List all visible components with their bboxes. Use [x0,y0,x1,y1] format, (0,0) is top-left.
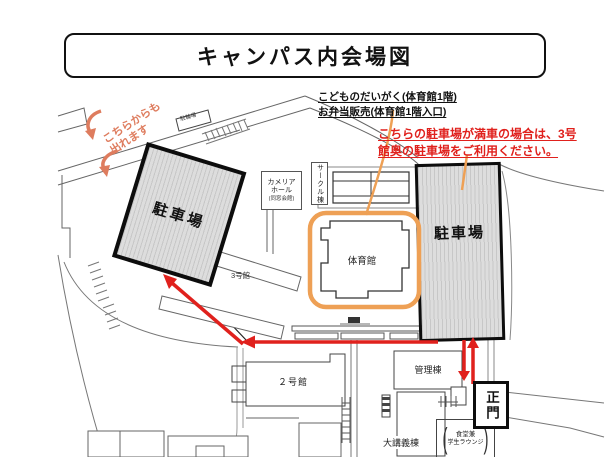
lecture-building-label: 大講義棟 [382,436,420,449]
main-gate-box: 正門 [473,381,509,429]
annotation-full-line1: こちらの駐車場が満車の場合は、3号 [378,126,577,143]
camellia-hall-label-2: ホール [271,187,292,196]
camellia-hall-label-1: カメリア [268,179,296,188]
parking-right-leader-line [462,155,467,190]
camellia-hall-label-3: (同窓会館) [269,196,295,203]
main-gate-label: 正門 [481,390,501,421]
building3-label: 3号館 [231,270,250,281]
map-title-box: キャンパス内会場図 [64,33,546,78]
gym-label: 体育館 [333,253,391,267]
annotation-kids-line2: お弁当販売(体育館1階入口) [318,105,457,120]
red-arrow-diagonal [163,274,243,344]
annotation-full-line2: 館奥の駐車場をご利用ください。 [378,143,577,160]
campus-map: 駐車場 駐車場 [0,0,608,457]
building2-label: ２号館 [264,375,322,388]
annotation-kids-line1: こどものだいがく(体育館1階) [318,90,457,105]
red-arrow-horizontal [241,336,438,349]
annotation-full-parking: こちらの駐車場が満車の場合は、3号 館奥の駐車場をご利用ください。 [378,126,577,159]
salmon-curved-arrow-1 [85,111,101,140]
page-title: キャンパス内会場図 [197,41,413,71]
circle-building-label: サークル棟 [315,164,325,204]
cafeteria-label-1: 食堂兼 [456,431,476,439]
red-arrow-up [467,337,479,384]
camellia-hall-box: カメリア ホール (同窓会館) [261,171,302,210]
admin-building-label: 管理棟 [401,363,455,376]
cafeteria-paren-left: ( [442,422,447,456]
annotation-kids-university: こどものだいがく(体育館1階) お弁当販売(体育館1階入口) [318,90,457,120]
cafeteria-label-2: 学生ラウンジ [447,439,483,447]
circle-building-box: サークル棟 [311,162,328,205]
